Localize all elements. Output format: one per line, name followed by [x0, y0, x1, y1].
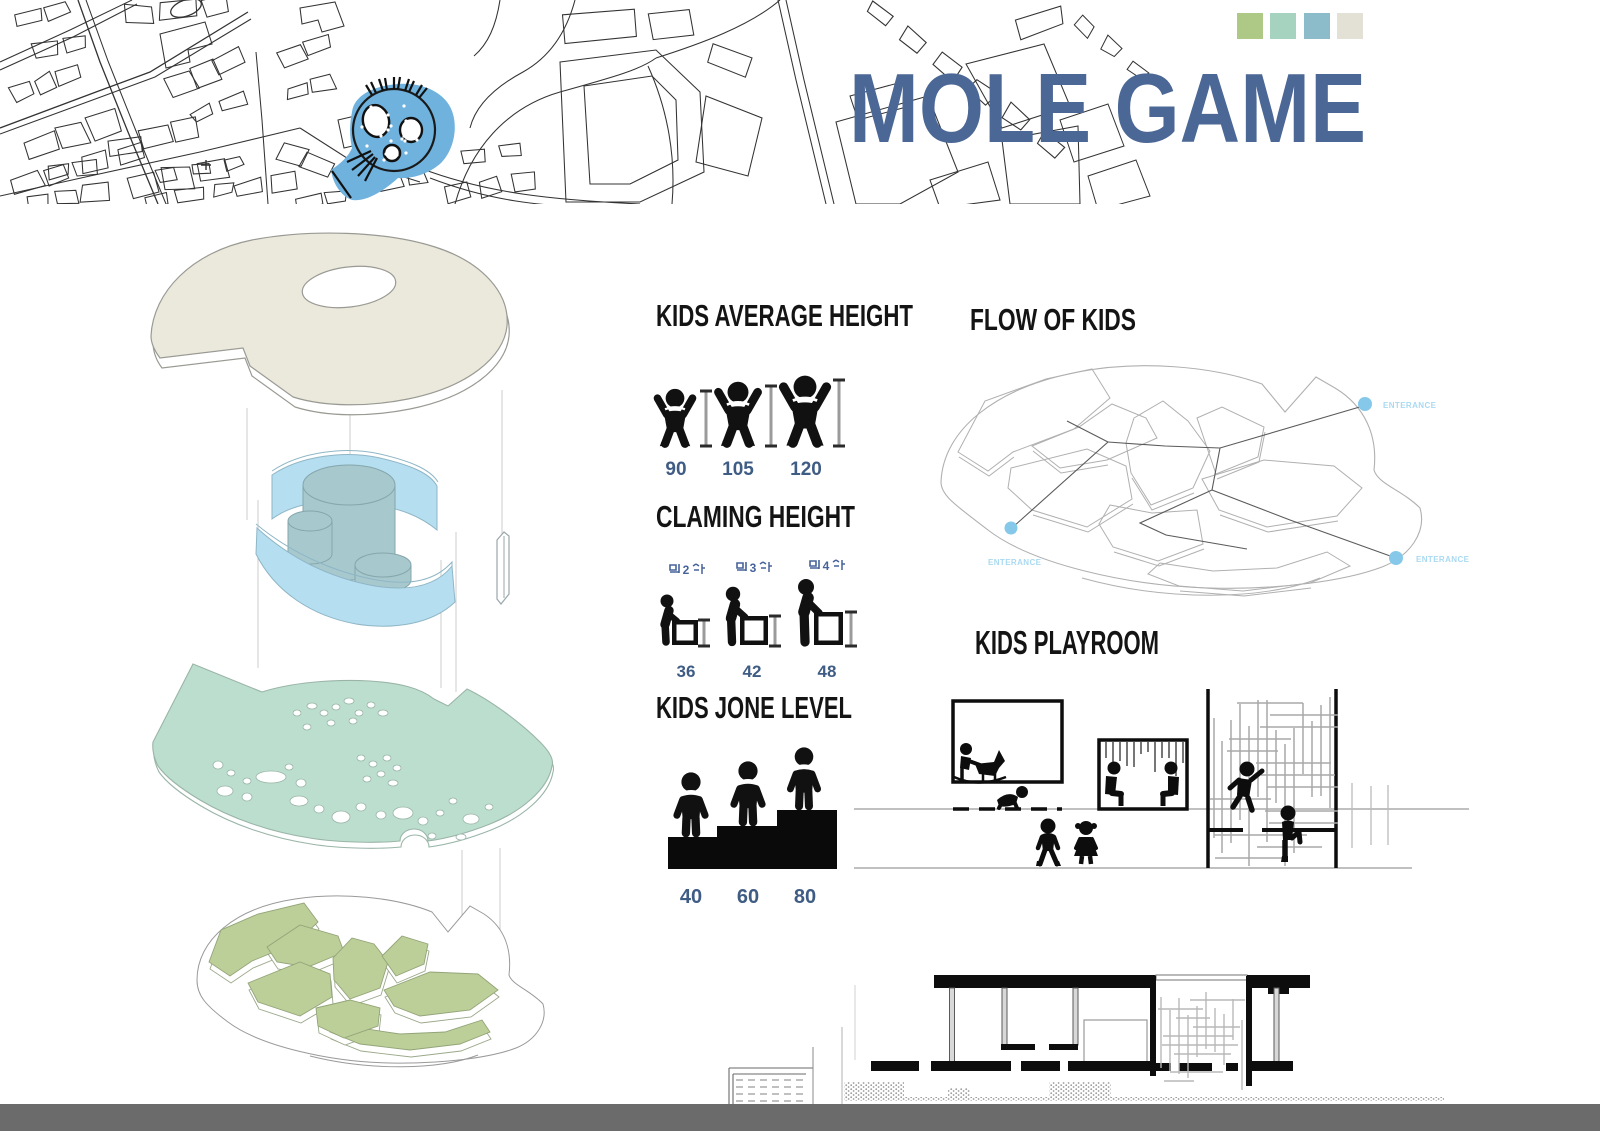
svg-text:ENTERANCE: ENTERANCE	[988, 558, 1042, 567]
svg-text:90: 90	[665, 459, 686, 480]
svg-text:2: 2	[683, 563, 690, 577]
svg-text:KIDS AVERAGE HEIGHT: KIDS AVERAGE HEIGHT	[656, 298, 913, 333]
svg-text:80: 80	[794, 886, 816, 908]
svg-text:ENTERANCE: ENTERANCE	[1416, 555, 1470, 564]
svg-text:3: 3	[750, 561, 757, 575]
svg-text:KIDS PLAYROOM: KIDS PLAYROOM	[975, 624, 1159, 661]
svg-text:40: 40	[680, 886, 702, 908]
svg-text:36: 36	[677, 662, 696, 681]
svg-text:ENTERANCE: ENTERANCE	[1383, 401, 1437, 410]
svg-text:KIDS JONE LEVEL: KIDS JONE LEVEL	[656, 690, 852, 725]
svg-text:120: 120	[790, 459, 822, 480]
svg-text:MOLE GAME: MOLE GAME	[849, 53, 1366, 163]
svg-text:105: 105	[722, 459, 754, 480]
svg-text:48: 48	[818, 662, 837, 681]
svg-text:60: 60	[737, 886, 759, 908]
svg-text:FLOW OF KIDS: FLOW OF KIDS	[970, 302, 1136, 337]
svg-text:4: 4	[823, 559, 830, 573]
svg-text:42: 42	[743, 662, 762, 681]
svg-text:CLAMING HEIGHT: CLAMING HEIGHT	[656, 499, 855, 534]
